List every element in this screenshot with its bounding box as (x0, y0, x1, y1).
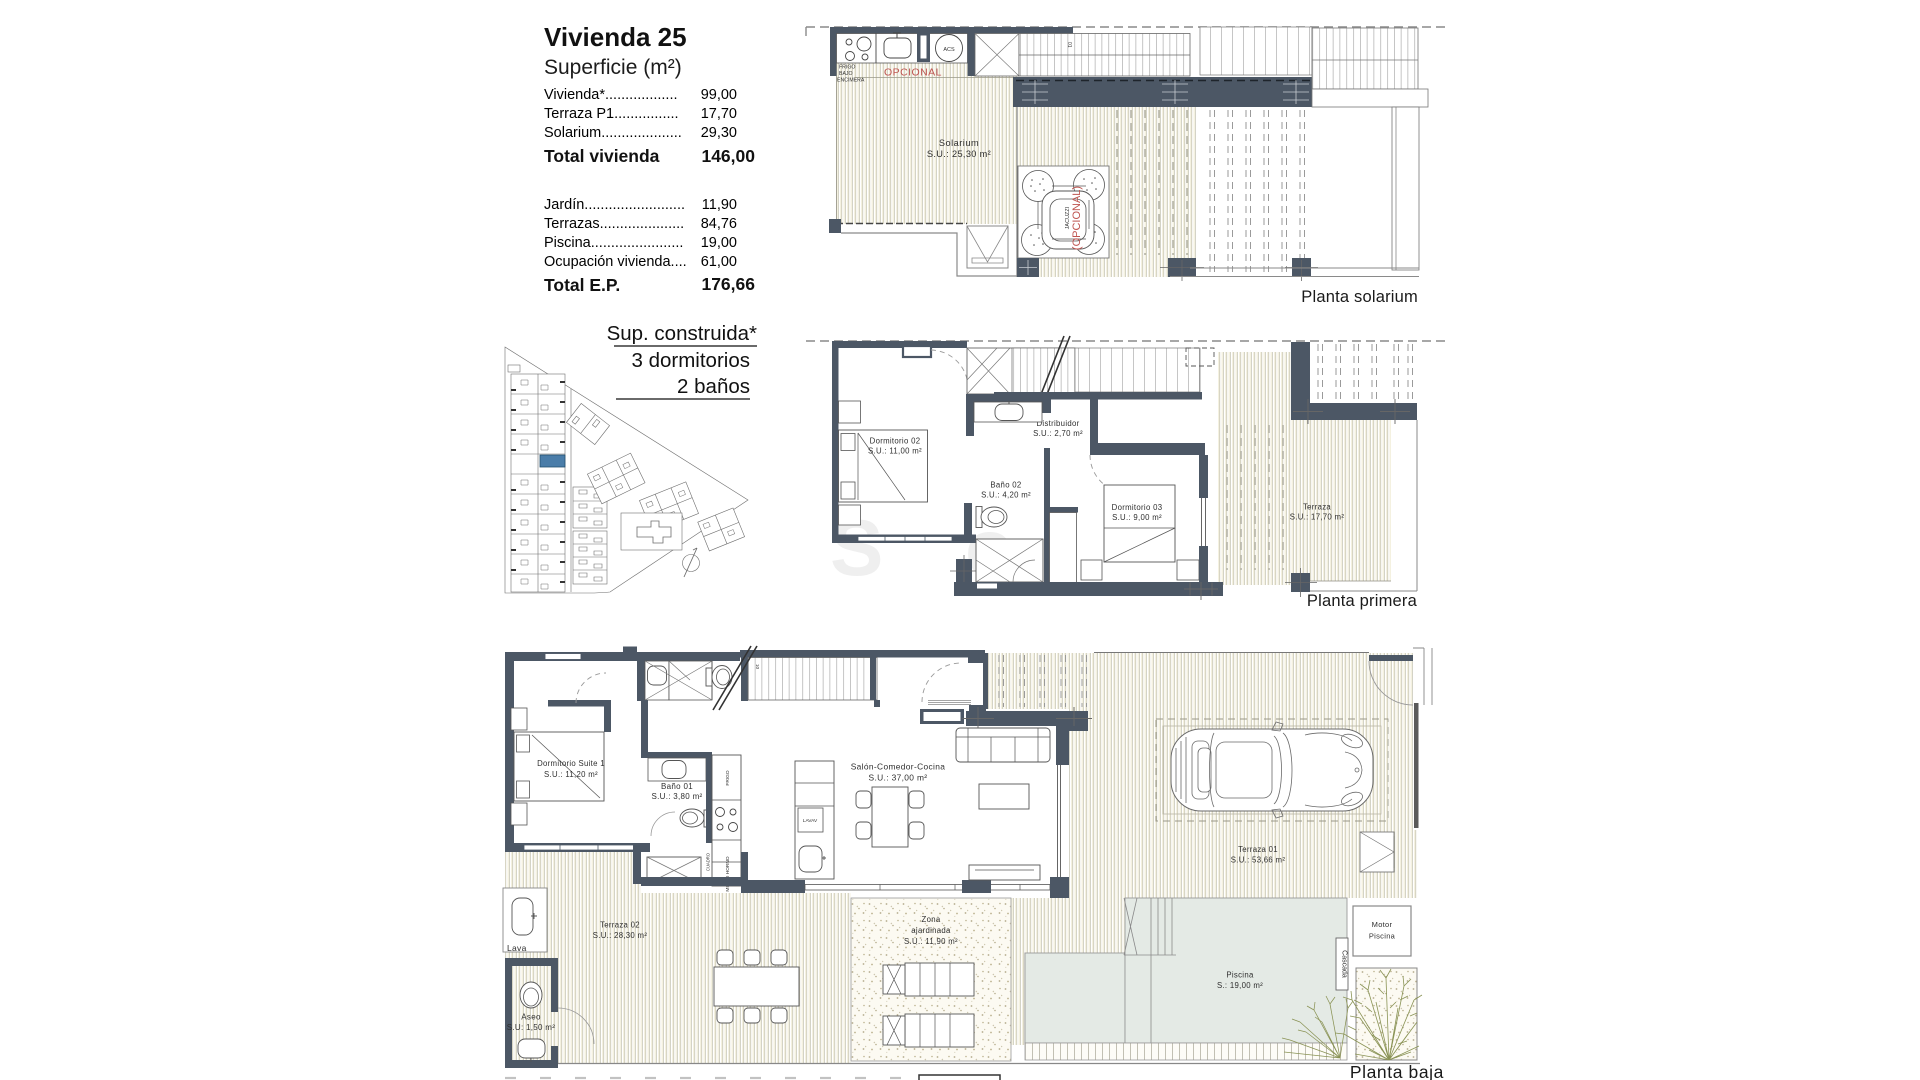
svg-text:OPCIONAL: OPCIONAL (884, 67, 942, 79)
svg-text:84,76: 84,76 (701, 216, 737, 232)
svg-text:Salón-Comedor-Cocina: Salón-Comedor-Cocina (851, 762, 946, 772)
svg-text:S.U.: 11,00 m²: S.U.: 11,00 m² (868, 447, 922, 456)
svg-text:S.U.: 17,70 m²: S.U.: 17,70 m² (1290, 513, 1345, 522)
svg-text:Vivienda*..................: Vivienda*.................. (544, 87, 678, 103)
svg-text:Planta baja: Planta baja (1350, 1062, 1444, 1080)
svg-text:Terrazas.....................: Terrazas..................... (544, 216, 684, 232)
svg-text:S.U.: 2,70 m²: S.U.: 2,70 m² (1033, 429, 1083, 438)
svg-text:S.U.: 37,00 m²: S.U.: 37,00 m² (869, 773, 928, 783)
svg-text:S.: 19,00 m²: S.: 19,00 m² (1217, 981, 1263, 990)
svg-text:S.U.: 4,20 m²: S.U.: 4,20 m² (981, 491, 1031, 500)
svg-text:ajardinada: ajardinada (911, 926, 951, 935)
svg-text:176,66: 176,66 (701, 274, 755, 294)
svg-text:S.U: 1,50 m²: S.U: 1,50 m² (507, 1023, 556, 1032)
svg-text:Piscina: Piscina (1226, 971, 1254, 980)
svg-text:(OPCIONAL): (OPCIONAL) (1071, 186, 1083, 250)
svg-text:3 dormitorios: 3 dormitorios (632, 349, 751, 372)
svg-text:Piscina.......................: Piscina....................... (544, 235, 683, 251)
svg-text:19,00: 19,00 (701, 235, 737, 251)
svg-text:S.U.: 25,30 m²: S.U.: 25,30 m² (927, 149, 991, 159)
svg-text:Planta primera: Planta primera (1307, 592, 1418, 610)
svg-text:99,00: 99,00 (701, 87, 737, 103)
svg-text:Terraza 02: Terraza 02 (600, 921, 640, 930)
svg-text:LAVAV: LAVAV (803, 818, 818, 824)
svg-text:Distribuidor: Distribuidor (1036, 419, 1079, 428)
svg-text:S.U.: 3,80 m²: S.U.: 3,80 m² (651, 792, 702, 801)
svg-text:Baño 01: Baño 01 (661, 782, 693, 791)
svg-text:Aseo: Aseo (521, 1013, 541, 1022)
svg-text:S.U.: 11,20 m²: S.U.: 11,20 m² (544, 770, 598, 779)
svg-text:Zona: Zona (922, 915, 941, 924)
svg-text:Superficie (m²): Superficie (m²) (544, 56, 682, 79)
svg-text:29,30: 29,30 (701, 125, 737, 141)
svg-text:Dormitorio 02: Dormitorio 02 (870, 437, 921, 446)
svg-text:S.U.: 11,90 m²: S.U.: 11,90 m² (904, 937, 958, 946)
svg-text:ACS: ACS (943, 47, 955, 53)
svg-text:Terraza P1................: Terraza P1................ (544, 106, 679, 122)
svg-text:Motor: Motor (1372, 920, 1393, 929)
svg-text:Sup. construida*: Sup. construida* (607, 322, 757, 345)
svg-text:61,00: 61,00 (701, 254, 737, 270)
svg-text:10: 10 (755, 664, 760, 670)
svg-text:Vivienda 25: Vivienda 25 (544, 22, 687, 52)
svg-text:Dormitorio Suite 1: Dormitorio Suite 1 (537, 759, 605, 768)
svg-text:FRIGO: FRIGO (725, 770, 731, 785)
svg-text:2 baños: 2 baños (677, 375, 750, 398)
svg-text:Piscina: Piscina (1369, 932, 1396, 941)
svg-text:11,90: 11,90 (702, 197, 737, 213)
svg-text:146,00: 146,00 (701, 146, 755, 166)
svg-text:S.U.: 53,66 m²: S.U.: 53,66 m² (1231, 856, 1286, 865)
svg-text:Cascada: Cascada (1341, 950, 1348, 978)
svg-text:CUADRO: CUADRO (706, 852, 711, 871)
svg-text:Terraza 01: Terraza 01 (1238, 845, 1278, 854)
svg-text:Planta solarium: Planta solarium (1301, 288, 1418, 306)
svg-text:S.U.: 9,00 m²: S.U.: 9,00 m² (1112, 513, 1162, 522)
svg-text:Lava: Lava (507, 943, 527, 953)
svg-text:Terraza: Terraza (1303, 503, 1331, 512)
svg-text:17,70: 17,70 (701, 106, 737, 122)
svg-text:MICRO HORNO: MICRO HORNO (725, 856, 731, 891)
svg-text:Total E.P.: Total E.P. (544, 275, 620, 295)
svg-text:ENCIMERA: ENCIMERA (837, 78, 865, 84)
svg-text:Dormitorio 03: Dormitorio 03 (1112, 503, 1163, 512)
svg-text:S.U.: 28,30 m²: S.U.: 28,30 m² (593, 931, 648, 940)
svg-text:Baño 02: Baño 02 (990, 481, 1021, 490)
svg-text:Ocupación vivienda....: Ocupación vivienda.... (544, 254, 687, 270)
svg-text:Total vivienda: Total vivienda (544, 146, 660, 166)
svg-text:Jardín........................: Jardín......................... (544, 197, 685, 213)
svg-text:01: 01 (1066, 42, 1072, 48)
svg-text:Solarium: Solarium (939, 138, 979, 148)
svg-text:Solarium....................: Solarium.................... (544, 125, 682, 141)
svg-text:BAJO: BAJO (839, 71, 853, 77)
svg-text:FRIGO: FRIGO (839, 65, 855, 71)
